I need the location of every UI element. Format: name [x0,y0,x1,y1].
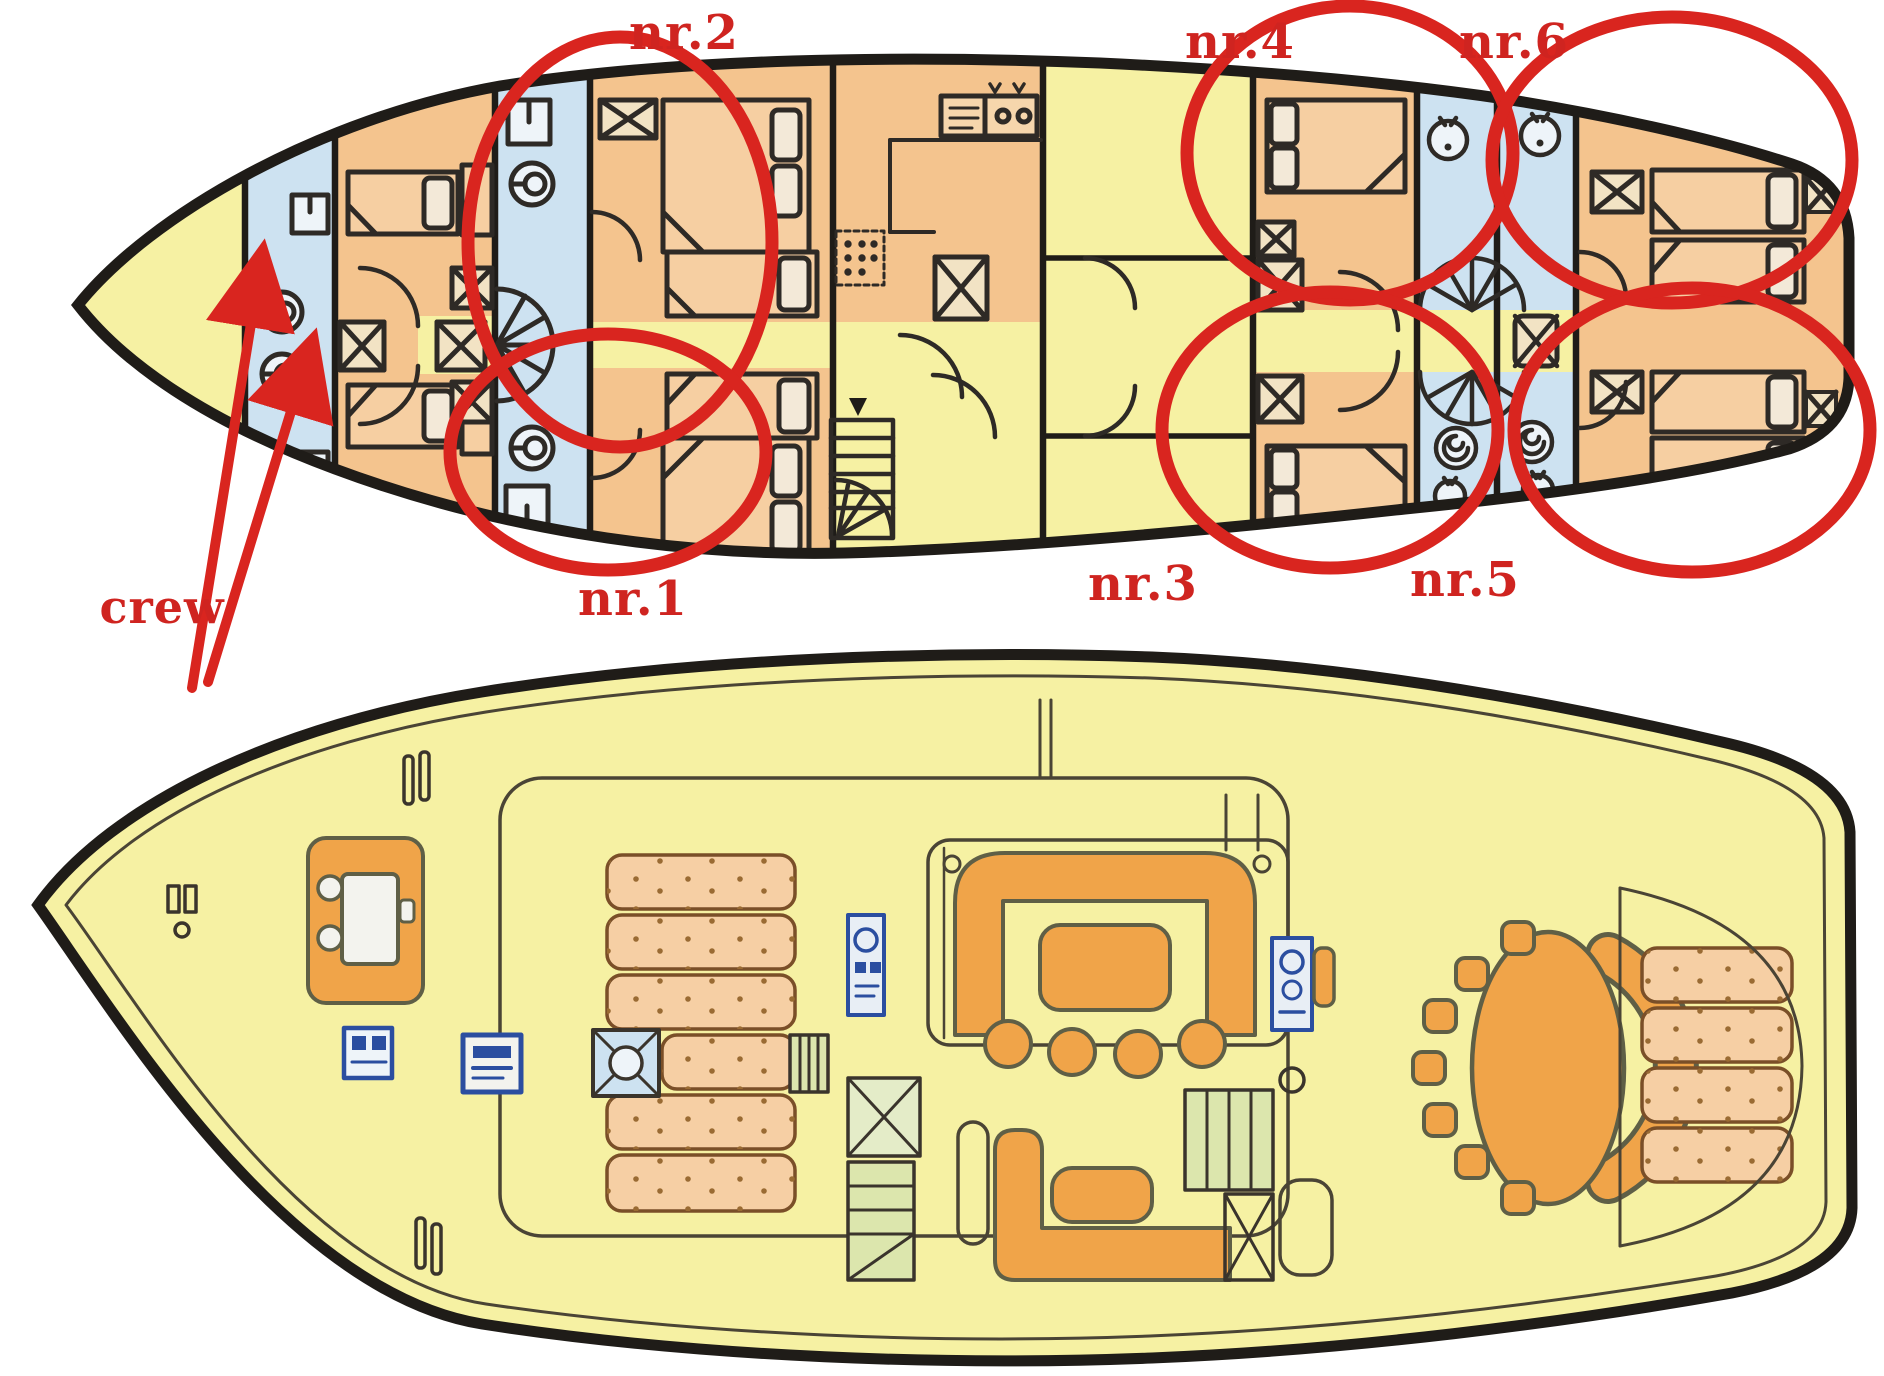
companionway-ladder [1185,1090,1273,1190]
instrument-hatch-icon [463,1035,521,1092]
cabin-label-nr2: nr.2 [629,5,739,61]
toilet-icon [511,427,553,469]
single-bed [667,252,817,316]
crew-bed [348,172,458,234]
double-bed [1267,100,1405,192]
shower-spiral-icon [1436,428,1476,468]
bow-hatch-icon [344,1028,392,1078]
storage-x-box [935,257,987,319]
toilet-icon [511,163,553,205]
crew-bed [348,385,458,447]
storage-x-box [1258,222,1294,256]
crew-label: crew [99,580,224,634]
crew-toilet-icon [262,292,302,332]
toilet-icon [1429,118,1467,159]
aft-steps [848,1162,914,1280]
engine-hatch [848,1078,920,1156]
storage-x-box [1592,172,1642,212]
storage-x-box [340,322,384,370]
cabin-label-nr6: nr.6 [1459,14,1569,70]
deck-plan-drawing [0,0,1884,1376]
single-bed [1652,170,1804,232]
single-bed [1652,372,1804,432]
cabin-label-nr4: nr.4 [1185,14,1295,70]
aft-table [1052,1168,1152,1222]
yacht-deck-plans: crew nr.1 nr.2 nr.3 nr.4 nr.5 nr.6 [0,0,1884,1376]
cabin-label-nr5: nr.5 [1410,552,1520,608]
skylight-hatch-icon [593,1030,659,1096]
double-bed [663,100,809,252]
main-deck-plan [38,655,1852,1361]
helm-console [848,915,884,1015]
cabin-label-nr3: nr.3 [1088,556,1198,612]
cabin-label-nr1: nr.1 [578,571,688,627]
oval-dining-table [1472,932,1624,1204]
toilet-icon [1521,114,1559,155]
cockpit-table [1040,925,1170,1010]
storage-x-box [1258,376,1302,422]
storage-x-box [600,100,656,138]
side-steps [790,1035,828,1092]
